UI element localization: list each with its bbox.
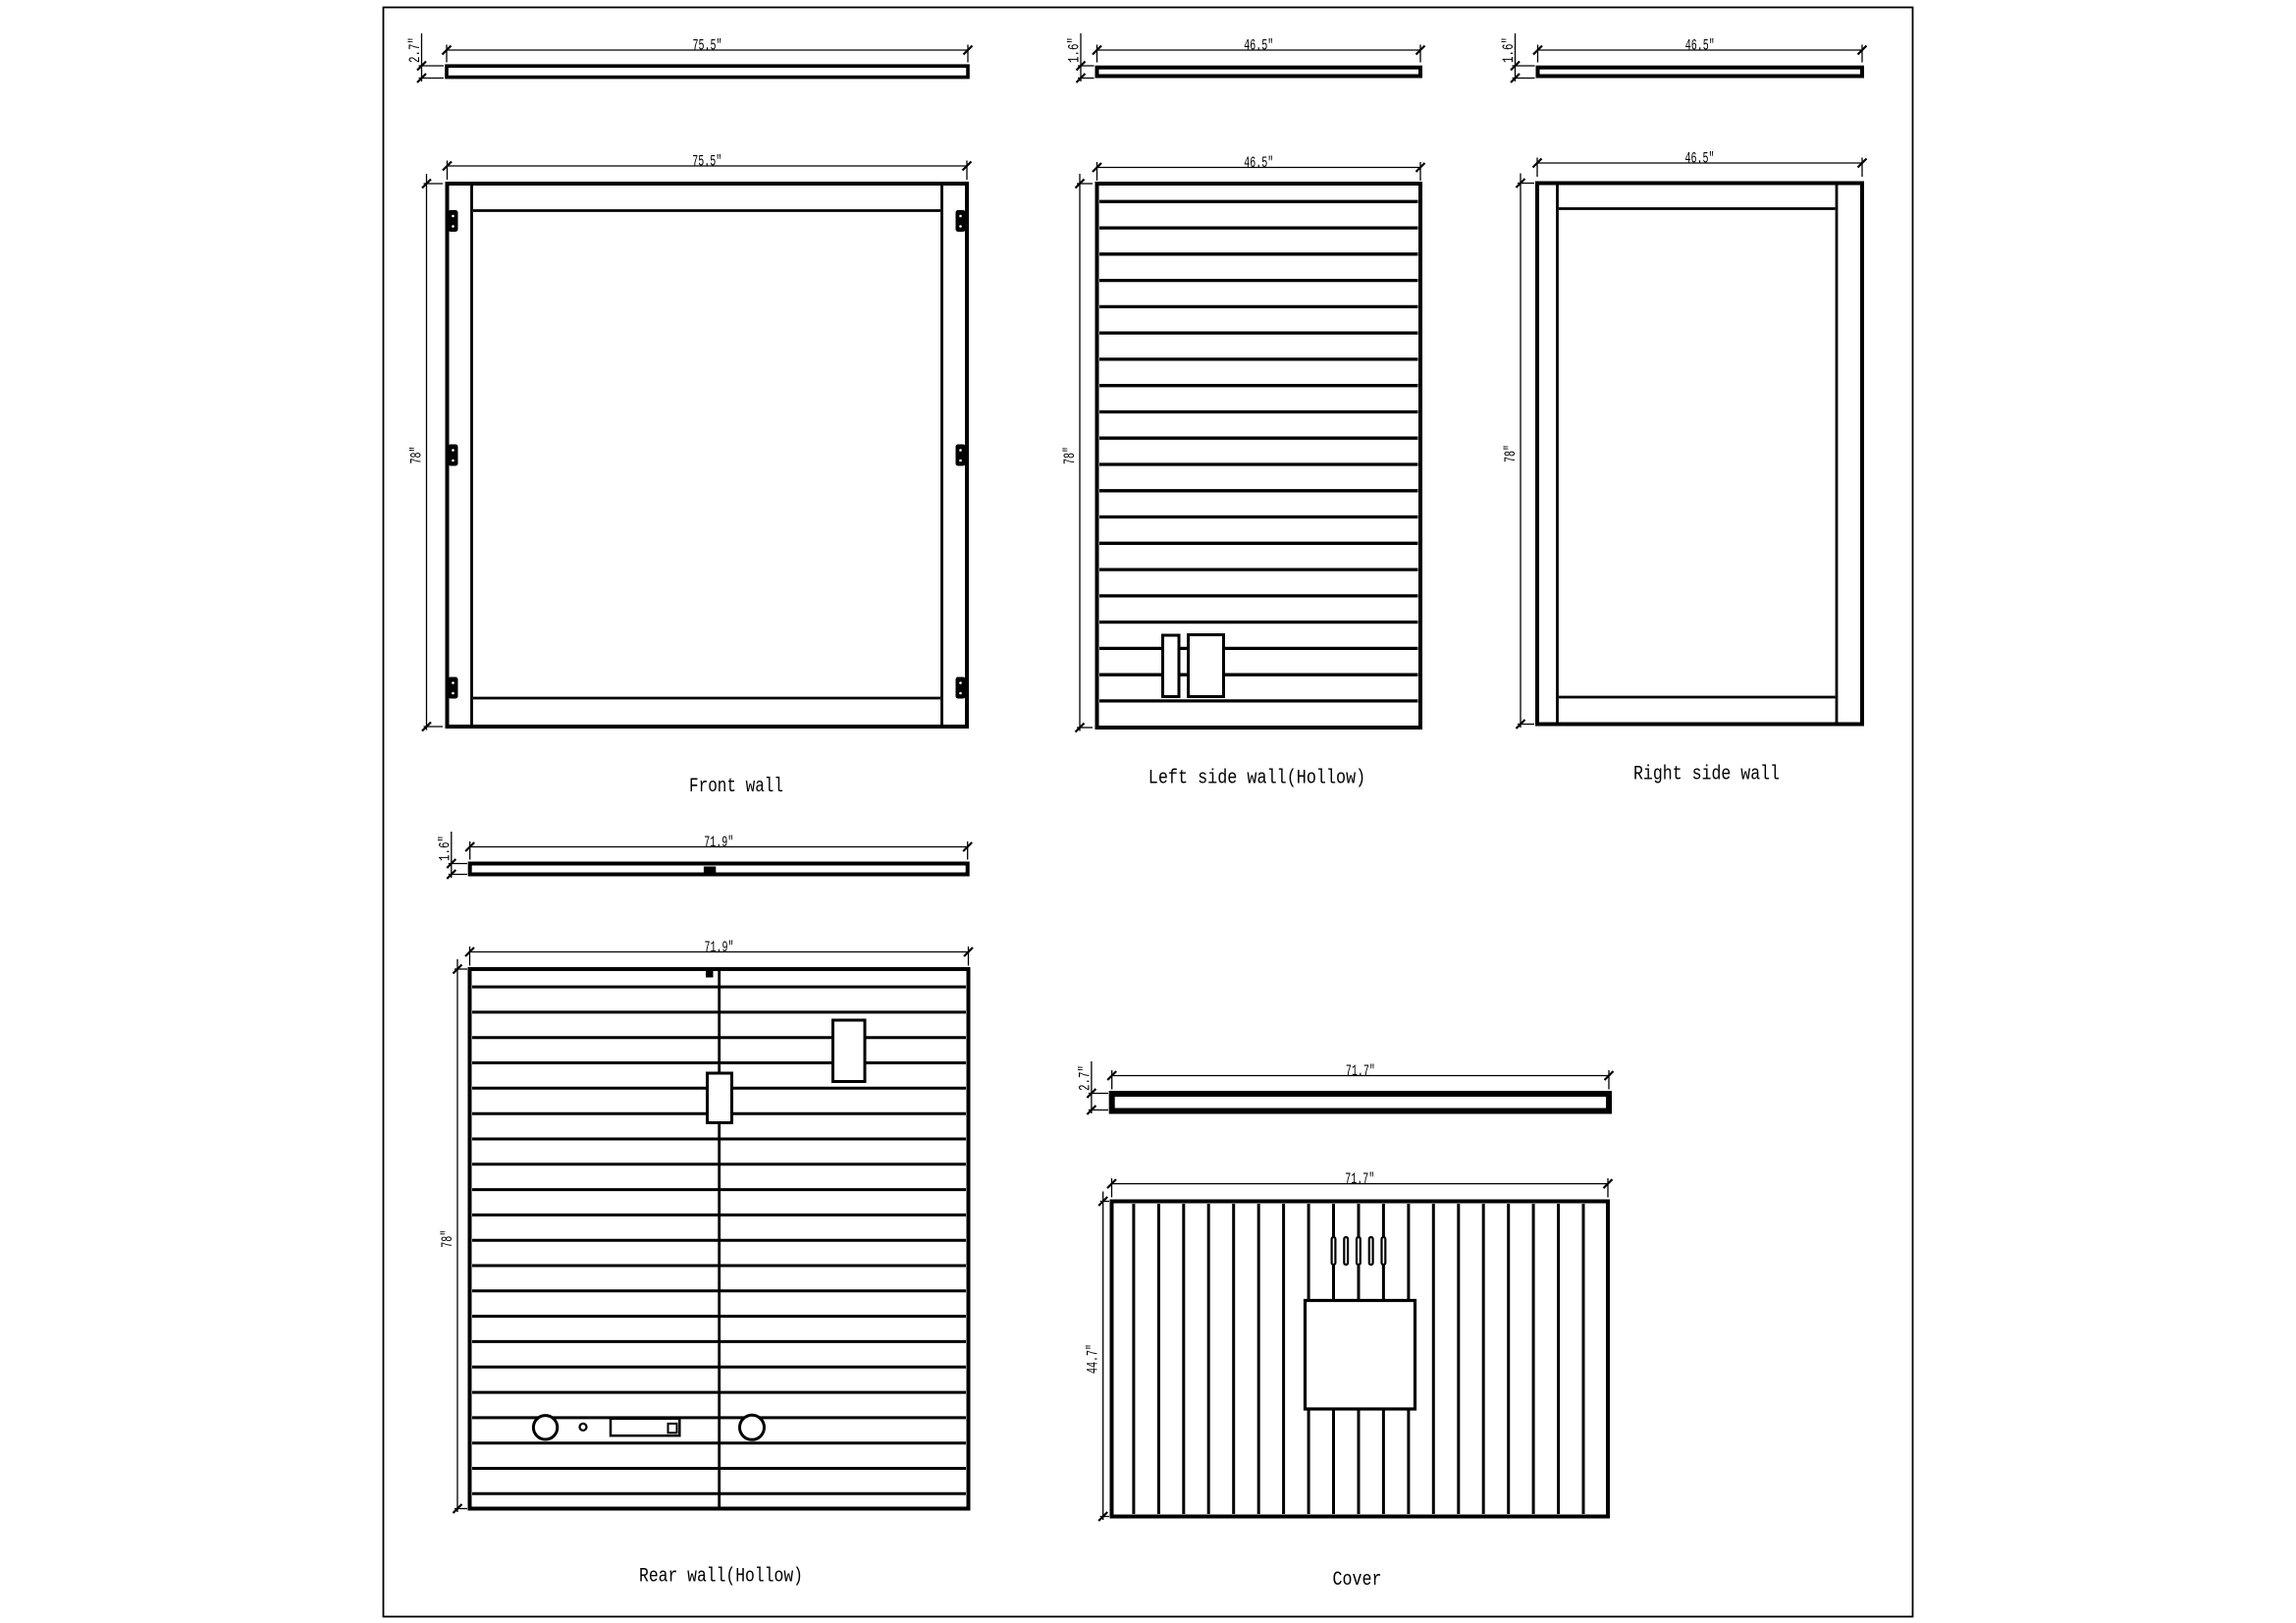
svg-text:Rear wall(Hollow): Rear wall(Hollow): [639, 1566, 803, 1589]
svg-text:71.7″: 71.7″: [1346, 1062, 1375, 1080]
svg-text:78″: 78″: [408, 447, 426, 464]
svg-text:1.6″: 1.6″: [436, 836, 454, 861]
svg-text:2.7″: 2.7″: [406, 37, 424, 63]
svg-text:Cover: Cover: [1333, 1569, 1382, 1592]
svg-text:75.5″: 75.5″: [693, 37, 722, 55]
svg-text:71.9″: 71.9″: [704, 834, 733, 851]
svg-text:75.5″: 75.5″: [692, 153, 721, 171]
svg-text:44.7″: 44.7″: [1085, 1344, 1102, 1374]
svg-text:2.7″: 2.7″: [1076, 1065, 1094, 1091]
svg-text:78″: 78″: [439, 1230, 456, 1248]
svg-text:1.6″: 1.6″: [1066, 37, 1084, 63]
svg-text:78″: 78″: [1502, 445, 1520, 462]
svg-text:46.5″: 46.5″: [1685, 150, 1715, 168]
svg-text:46.5″: 46.5″: [1244, 37, 1273, 55]
svg-text:Right side wall: Right side wall: [1633, 764, 1780, 786]
svg-text:46.5″: 46.5″: [1685, 37, 1715, 55]
svg-text:71.9″: 71.9″: [705, 939, 734, 956]
svg-text:78″: 78″: [1061, 447, 1079, 464]
svg-text:46.5″: 46.5″: [1244, 154, 1273, 172]
svg-text:1.6″: 1.6″: [1500, 37, 1518, 63]
svg-text:Front wall: Front wall: [689, 776, 783, 798]
svg-text:71.7″: 71.7″: [1345, 1170, 1374, 1188]
svg-text:Left side wall(Hollow): Left side wall(Hollow): [1148, 768, 1366, 790]
